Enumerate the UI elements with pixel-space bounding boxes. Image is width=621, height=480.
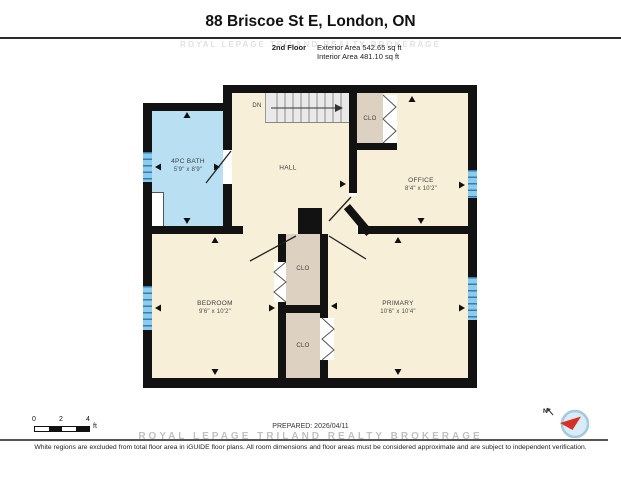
wall-bath-right-lower — [223, 184, 232, 226]
floor-plan-page: 88 Briscoe St E, London, ON ROYAL LEPAGE… — [0, 0, 621, 480]
wall-left — [143, 103, 152, 388]
exterior-area: Exterior Area 542.65 sq ft — [317, 43, 402, 52]
primary-name: PRIMARY — [380, 299, 416, 308]
header-rule — [0, 37, 621, 39]
office-dims: 8'4" x 10'2" — [405, 185, 437, 194]
wall-bottom — [143, 378, 477, 388]
scale-tick-4: 4 — [83, 416, 93, 423]
window-bath — [143, 152, 152, 182]
window-primary — [468, 277, 477, 320]
wall-hall-office — [349, 93, 357, 193]
wall-closet-top-bottom — [357, 143, 397, 150]
disclaimer-text: White regions are excluded from total fl… — [0, 444, 621, 451]
primary-label: PRIMARY 10'6" x 10'4" — [380, 299, 416, 317]
excluded-white-region — [152, 192, 164, 227]
wall-closet-middle — [278, 305, 328, 313]
stairs-area — [265, 93, 350, 123]
closet-upper-door-gap — [274, 262, 286, 302]
wall-top — [223, 85, 477, 93]
hall-label: HALL — [279, 163, 296, 172]
wall-bath-top — [143, 103, 232, 111]
wall-divider-left — [143, 226, 243, 234]
interior-area: Interior Area 481.10 sq ft — [317, 52, 399, 61]
closet-top-door-gap — [383, 95, 397, 143]
bath-name: 4PC BATH — [171, 157, 205, 166]
closet-lower-label: CLO — [296, 343, 309, 349]
floor-label: 2nd Floor — [238, 43, 306, 52]
bedroom-name: BEDROOM — [197, 299, 233, 308]
window-bedroom — [143, 286, 152, 330]
footer-rule — [0, 439, 608, 441]
window-office — [468, 170, 477, 198]
compass-north-label: N — [543, 408, 548, 415]
wall-closet-left-a — [278, 234, 286, 262]
wall-divider-right — [358, 226, 477, 234]
primary-dims: 10'6" x 10'4" — [380, 308, 416, 317]
stairs-dn-label: DN — [252, 103, 261, 109]
bedroom-label: BEDROOM 9'6" x 10'2" — [197, 299, 233, 317]
bath-label: 4PC BATH 5'9" x 8'9" — [171, 157, 205, 175]
wall-divider-stub — [298, 208, 322, 234]
wall-closet-right-b — [320, 360, 328, 378]
wall-bath-right-upper — [223, 103, 232, 150]
closet-top-label: CLO — [363, 116, 376, 122]
scale-tick-0: 0 — [29, 416, 39, 423]
office-name: OFFICE — [405, 176, 437, 185]
wall-closet-left-b — [278, 302, 286, 378]
bedroom-dims: 9'6" x 10'2" — [197, 308, 233, 317]
scale-tick-2: 2 — [56, 416, 66, 423]
prepared-date: PREPARED: 2026/04/11 — [0, 423, 621, 430]
wall-right — [468, 85, 477, 388]
closet-upper-label: CLO — [296, 266, 309, 272]
office-label: OFFICE 8'4" x 10'2" — [405, 176, 437, 194]
bath-dims: 5'9" x 8'9" — [171, 166, 205, 175]
header-watermark: ROYAL LEPAGE TRILAND REALTY BROKERAGE — [0, 40, 621, 49]
page-title: 88 Briscoe St E, London, ON — [0, 13, 621, 31]
closet-lower-door-gap — [322, 318, 334, 360]
